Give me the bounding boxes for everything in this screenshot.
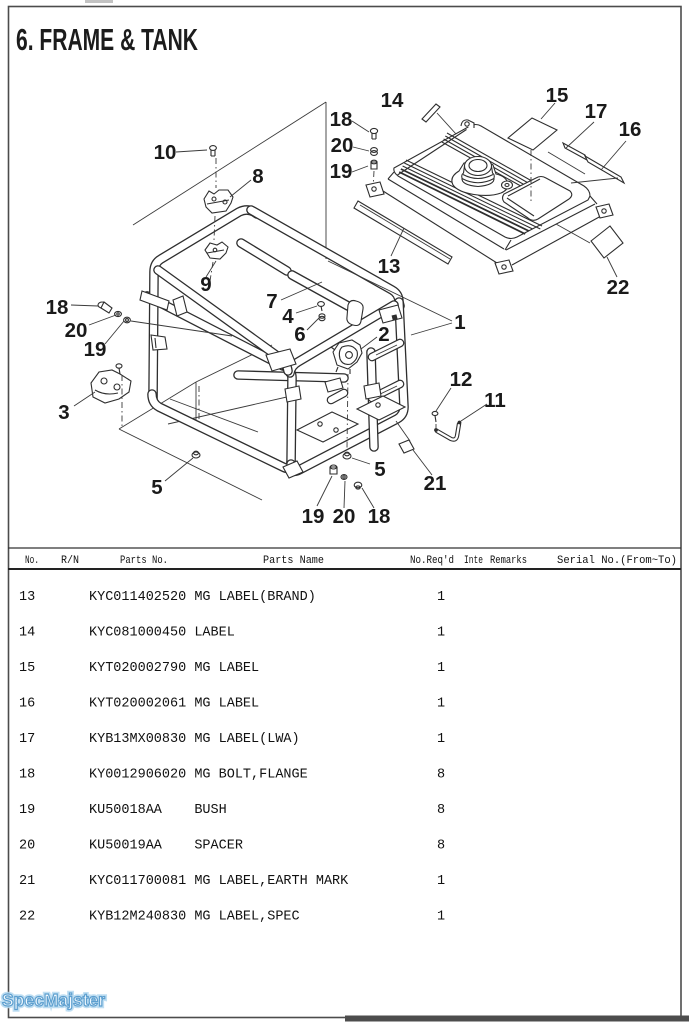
svg-text:17: 17 <box>585 100 608 123</box>
svg-text:3: 3 <box>58 401 69 424</box>
svg-text:1: 1 <box>437 909 445 924</box>
svg-text:19: 19 <box>330 160 353 183</box>
svg-text:2: 2 <box>378 323 389 346</box>
svg-text:1: 1 <box>437 661 445 676</box>
svg-text:Serial No.(From~To): Serial No.(From~To) <box>557 555 677 567</box>
svg-text:4: 4 <box>282 305 294 328</box>
svg-text:16: 16 <box>19 696 35 711</box>
svg-text:Parts Name: Parts Name <box>263 555 324 567</box>
svg-text:KYT020002790 MG LABEL: KYT020002790 MG LABEL <box>89 661 259 676</box>
svg-text:9: 9 <box>200 273 211 296</box>
svg-text:18: 18 <box>46 296 69 319</box>
svg-text:10: 10 <box>154 141 177 164</box>
svg-text:20: 20 <box>19 838 35 853</box>
svg-text:KYB12M240830 MG LABEL,SPEC: KYB12M240830 MG LABEL,SPEC <box>89 909 300 924</box>
svg-text:1: 1 <box>437 590 445 605</box>
svg-text:No.: No. <box>25 555 39 567</box>
svg-text:16: 16 <box>619 118 642 141</box>
svg-text:KU50019AA SPACER: KU50019AA SPACER <box>89 838 243 853</box>
svg-text:KY0012906020 MG BOLT,FLANGE: KY0012906020 MG BOLT,FLANGE <box>89 767 308 782</box>
svg-text:Parts No.: Parts No. <box>120 555 168 567</box>
svg-text:18: 18 <box>19 767 35 782</box>
svg-text:19: 19 <box>84 338 107 361</box>
svg-text:KYC011402520 MG LABEL(BRAND): KYC011402520 MG LABEL(BRAND) <box>89 590 316 605</box>
svg-text:8: 8 <box>437 838 445 853</box>
svg-text:1: 1 <box>454 311 465 334</box>
svg-text:1: 1 <box>437 625 445 640</box>
svg-text:Remarks: Remarks <box>490 555 527 567</box>
svg-text:KYB13MX00830 MG LABEL(LWA): KYB13MX00830 MG LABEL(LWA) <box>89 732 300 747</box>
svg-text:8: 8 <box>252 165 263 188</box>
svg-text:SpecMajster: SpecMajster <box>2 990 105 1010</box>
svg-text:KYT020002061 MG LABEL: KYT020002061 MG LABEL <box>89 696 259 711</box>
svg-text:1: 1 <box>437 732 445 747</box>
svg-text:KU50018AA BUSH: KU50018AA BUSH <box>89 803 227 818</box>
svg-text:15: 15 <box>19 661 35 676</box>
svg-text:22: 22 <box>607 276 630 299</box>
svg-text:18: 18 <box>368 505 391 528</box>
svg-text:15: 15 <box>546 84 569 107</box>
svg-text:No.Req'd: No.Req'd <box>410 555 454 567</box>
svg-text:12: 12 <box>450 368 473 391</box>
svg-text:21: 21 <box>424 472 447 495</box>
svg-text:14: 14 <box>381 89 404 112</box>
svg-text:18: 18 <box>330 108 353 131</box>
svg-text:1: 1 <box>437 874 445 889</box>
svg-text:22: 22 <box>19 909 35 924</box>
svg-text:19: 19 <box>302 505 325 528</box>
svg-text:5: 5 <box>374 458 385 481</box>
svg-text:7: 7 <box>266 290 277 313</box>
svg-text:8: 8 <box>437 767 445 782</box>
svg-text:13: 13 <box>378 255 401 278</box>
svg-text:19: 19 <box>19 803 35 818</box>
svg-text:21: 21 <box>19 874 35 889</box>
svg-text:KYC081000450 LABEL: KYC081000450 LABEL <box>89 625 235 640</box>
svg-text:20: 20 <box>331 134 354 157</box>
svg-text:5: 5 <box>151 476 162 499</box>
svg-text:6. FRAME & TANK: 6. FRAME & TANK <box>16 22 198 57</box>
svg-text:R/N: R/N <box>61 555 79 567</box>
svg-text:13: 13 <box>19 590 35 605</box>
svg-text:20: 20 <box>333 505 356 528</box>
svg-text:1: 1 <box>437 696 445 711</box>
svg-text:11: 11 <box>484 389 506 412</box>
svg-text:17: 17 <box>19 732 35 747</box>
svg-text:8: 8 <box>437 803 445 818</box>
svg-text:6: 6 <box>294 323 305 346</box>
svg-text:Inte: Inte <box>464 555 483 567</box>
svg-text:14: 14 <box>19 625 35 640</box>
svg-text:KYC011700081 MG LABEL,EARTH MA: KYC011700081 MG LABEL,EARTH MARK <box>89 874 349 889</box>
